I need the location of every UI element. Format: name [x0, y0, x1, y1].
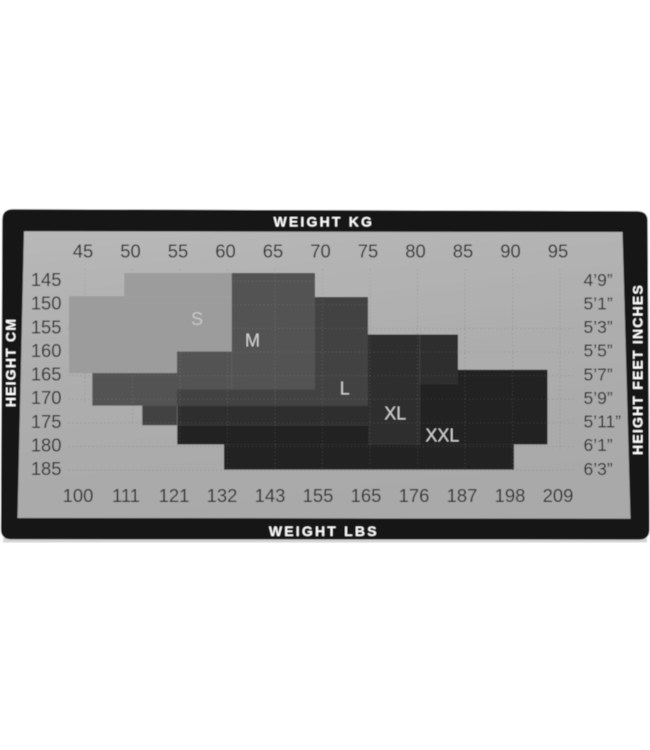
svg-text:5’11”: 5’11” — [584, 412, 622, 432]
svg-text:121: 121 — [159, 485, 190, 506]
svg-text:150: 150 — [31, 293, 62, 314]
svg-text:65: 65 — [263, 240, 283, 261]
svg-text:60: 60 — [215, 240, 235, 261]
svg-text:143: 143 — [255, 485, 286, 506]
svg-text:100: 100 — [63, 485, 94, 506]
svg-text:5’5”: 5’5” — [584, 341, 613, 361]
svg-text:M: M — [245, 330, 260, 350]
svg-text:5’7”: 5’7” — [584, 364, 613, 384]
svg-text:170: 170 — [31, 387, 62, 408]
svg-text:145: 145 — [31, 269, 62, 290]
svg-text:HEIGHT CM: HEIGHT CM — [3, 318, 19, 407]
svg-text:198: 198 — [495, 485, 526, 506]
svg-text:75: 75 — [358, 240, 378, 261]
svg-text:WEIGHT LBS: WEIGHT LBS — [269, 523, 379, 539]
svg-text:45: 45 — [73, 240, 93, 261]
svg-text:155: 155 — [31, 316, 62, 337]
svg-text:175: 175 — [31, 411, 62, 432]
svg-text:180: 180 — [31, 434, 62, 455]
svg-text:80: 80 — [405, 240, 425, 261]
svg-text:155: 155 — [303, 485, 334, 506]
svg-text:85: 85 — [453, 240, 473, 261]
svg-text:5’9”: 5’9” — [584, 388, 613, 408]
svg-text:70: 70 — [310, 240, 330, 261]
svg-text:XXL: XXL — [425, 425, 459, 445]
svg-text:90: 90 — [500, 240, 520, 261]
svg-text:6’3”: 6’3” — [584, 459, 613, 479]
svg-text:5’1”: 5’1” — [584, 293, 613, 313]
svg-text:160: 160 — [31, 340, 62, 361]
svg-text:95: 95 — [548, 240, 568, 261]
svg-text:4’9”: 4’9” — [584, 270, 613, 290]
svg-text:5’3”: 5’3” — [584, 317, 613, 337]
svg-text:165: 165 — [351, 485, 382, 506]
svg-text:HEIGHT FEET INCHES: HEIGHT FEET INCHES — [630, 284, 646, 455]
svg-text:165: 165 — [31, 364, 62, 385]
svg-text:55: 55 — [168, 240, 188, 261]
svg-text:209: 209 — [543, 485, 574, 506]
svg-text:176: 176 — [399, 485, 430, 506]
svg-text:6’1”: 6’1” — [584, 435, 613, 455]
svg-text:185: 185 — [31, 458, 62, 479]
svg-text:WEIGHT KG: WEIGHT KG — [273, 214, 374, 230]
svg-text:132: 132 — [207, 485, 238, 506]
svg-text:L: L — [340, 378, 350, 398]
svg-text:XL: XL — [384, 403, 406, 423]
svg-text:187: 187 — [447, 485, 478, 506]
svg-text:S: S — [191, 309, 203, 329]
svg-text:111: 111 — [112, 485, 140, 506]
svg-text:50: 50 — [120, 240, 140, 261]
